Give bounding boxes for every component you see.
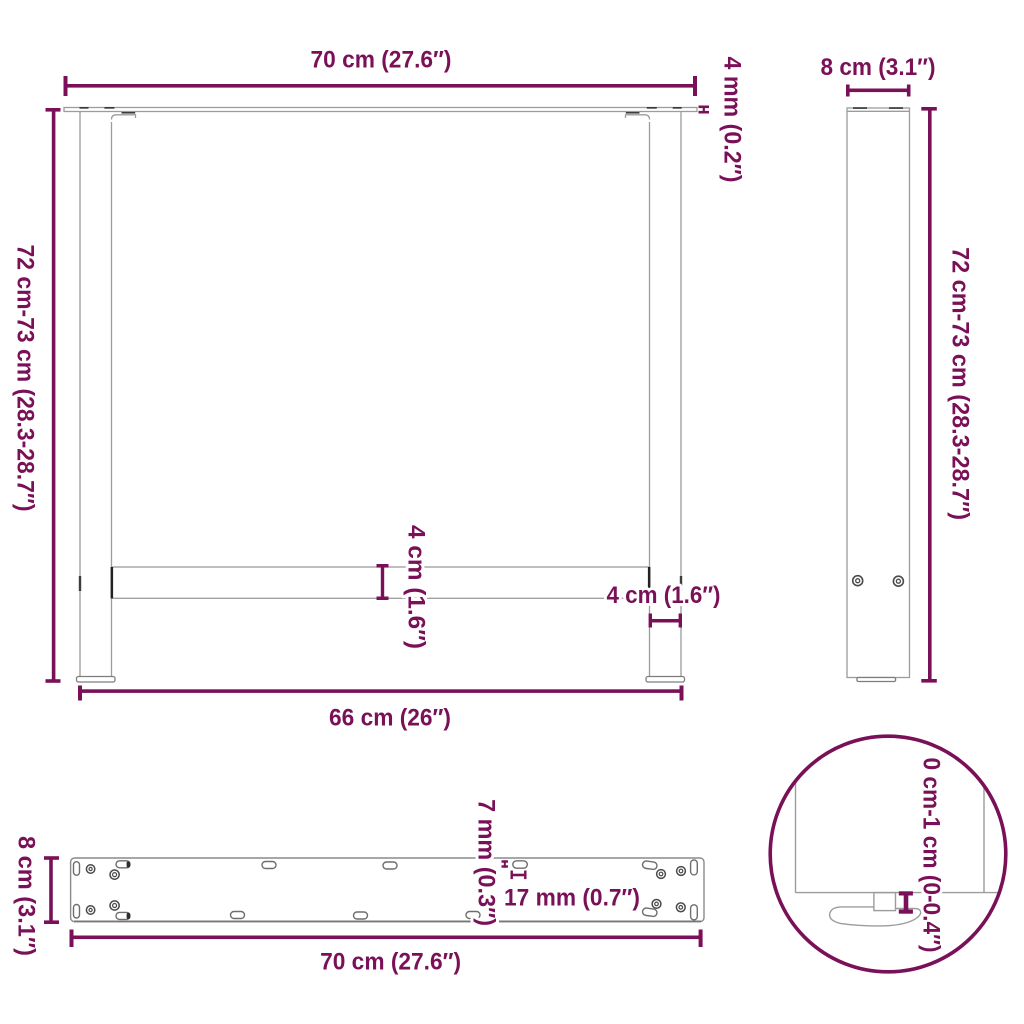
svg-text:4 mm (0.2″): 4 mm (0.2″)	[719, 57, 746, 183]
svg-text:8 cm (3.1″): 8 cm (3.1″)	[13, 836, 40, 956]
svg-text:72 cm-73 cm (28.3-28.7″): 72 cm-73 cm (28.3-28.7″)	[947, 247, 974, 520]
svg-text:70 cm (27.6″): 70 cm (27.6″)	[320, 949, 461, 976]
svg-text:0 cm-1 cm (0-0.4″): 0 cm-1 cm (0-0.4″)	[918, 758, 945, 953]
svg-text:72 cm-73 cm (28.3-28.7″): 72 cm-73 cm (28.3-28.7″)	[12, 245, 39, 512]
svg-text:17 mm (0.7″): 17 mm (0.7″)	[504, 885, 640, 912]
svg-text:8 cm (3.1″): 8 cm (3.1″)	[821, 54, 936, 81]
svg-text:66 cm (26″): 66 cm (26″)	[329, 704, 451, 731]
svg-text:4 cm (1.6″): 4 cm (1.6″)	[403, 525, 430, 649]
svg-text:4 cm (1.6″): 4 cm (1.6″)	[607, 582, 721, 609]
svg-text:7 mm (0.3″): 7 mm (0.3″)	[473, 799, 500, 926]
svg-text:70 cm (27.6″): 70 cm (27.6″)	[311, 47, 452, 74]
